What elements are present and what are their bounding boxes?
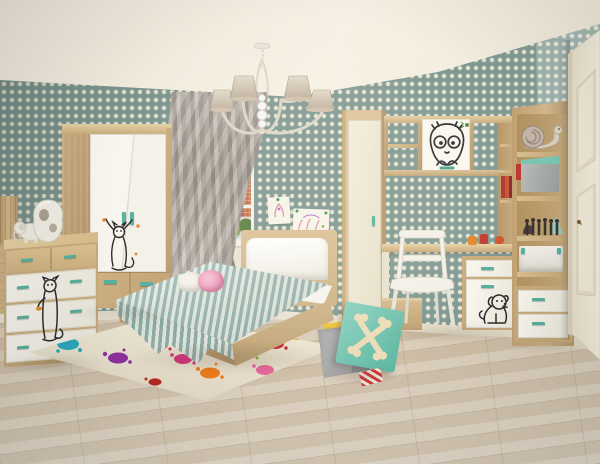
shelf-drawer-handle-1 <box>532 298 545 301</box>
shadow-under-toybox <box>314 366 400 384</box>
dog-decal <box>476 292 512 326</box>
pedestal-handle-1 <box>481 267 494 270</box>
wall-art-1 <box>267 196 290 224</box>
shadow-under-chest <box>0 352 110 378</box>
shelf-drawer-handle-2 <box>532 322 545 325</box>
desk-cabinet-door <box>348 120 381 326</box>
chandelier <box>186 12 346 144</box>
desk-cabinet-handle <box>372 216 375 226</box>
shadow-under-wardrobe <box>62 306 177 320</box>
shadow-under-desk <box>380 324 525 342</box>
shadow-under-shelf-unit <box>508 338 580 352</box>
storage-box-gray <box>521 164 559 192</box>
door-key <box>580 223 582 225</box>
wardrobe-top <box>62 124 172 134</box>
desk-toy-3 <box>495 236 504 244</box>
bridge-shelf-left <box>388 144 418 148</box>
door <box>568 24 600 364</box>
bridge-post-left <box>384 123 388 176</box>
pedestal-handle-2 <box>481 285 494 288</box>
desk-toy-2 <box>480 234 488 244</box>
cat-face-decal <box>422 119 472 173</box>
bridge-bottom-board <box>384 170 500 176</box>
desk-toy-1 <box>468 236 477 245</box>
shadow-under-bed <box>120 340 340 376</box>
bedroom-render <box>0 0 600 464</box>
plush-toy-pink <box>198 270 224 292</box>
door-frame <box>568 51 572 336</box>
desk-unit <box>340 98 522 336</box>
sculpture-figurine <box>30 198 66 244</box>
box-latch-1 <box>521 248 525 254</box>
figurines-row <box>519 210 565 236</box>
art-doodle-1 <box>270 201 289 223</box>
